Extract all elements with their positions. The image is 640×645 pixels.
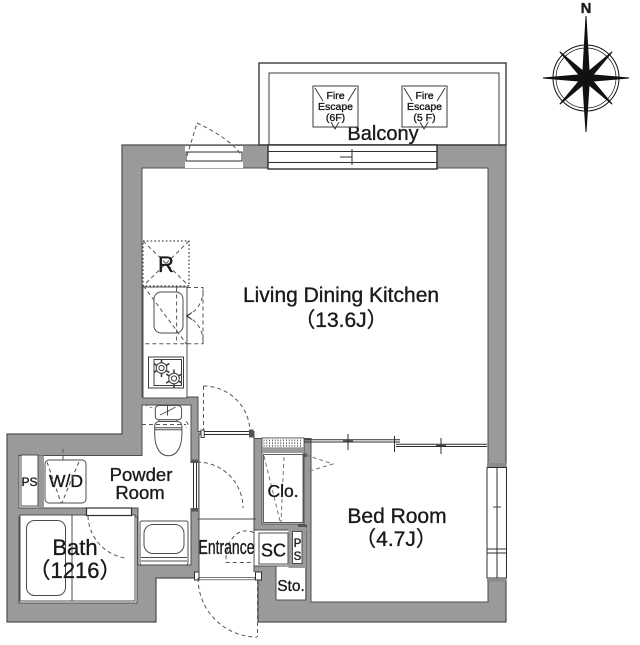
svg-text:(6F): (6F) xyxy=(326,112,345,124)
svg-text:（13.6J）: （13.6J） xyxy=(294,309,387,332)
svg-text:N: N xyxy=(581,0,592,17)
svg-text:Bed Room: Bed Room xyxy=(347,505,446,528)
svg-text:(5 F): (5 F) xyxy=(413,112,435,124)
svg-text:Living Dining Kitchen: Living Dining Kitchen xyxy=(243,284,439,307)
svg-text:Sto.: Sto. xyxy=(277,578,305,595)
svg-text:Room: Room xyxy=(115,482,164,503)
svg-text:R: R xyxy=(158,252,174,277)
svg-text:Bath: Bath xyxy=(52,535,97,560)
svg-text:S: S xyxy=(294,551,302,563)
svg-text:（1216）: （1216） xyxy=(29,558,122,583)
svg-text:Entrance: Entrance xyxy=(199,537,255,559)
svg-text:W/D: W/D xyxy=(49,471,83,491)
svg-text:P: P xyxy=(294,538,302,550)
svg-text:Clo.: Clo. xyxy=(267,481,298,501)
svg-text:PS: PS xyxy=(21,475,37,489)
svg-text:SC: SC xyxy=(261,541,286,561)
svg-text:（4.7J）: （4.7J） xyxy=(355,528,437,551)
